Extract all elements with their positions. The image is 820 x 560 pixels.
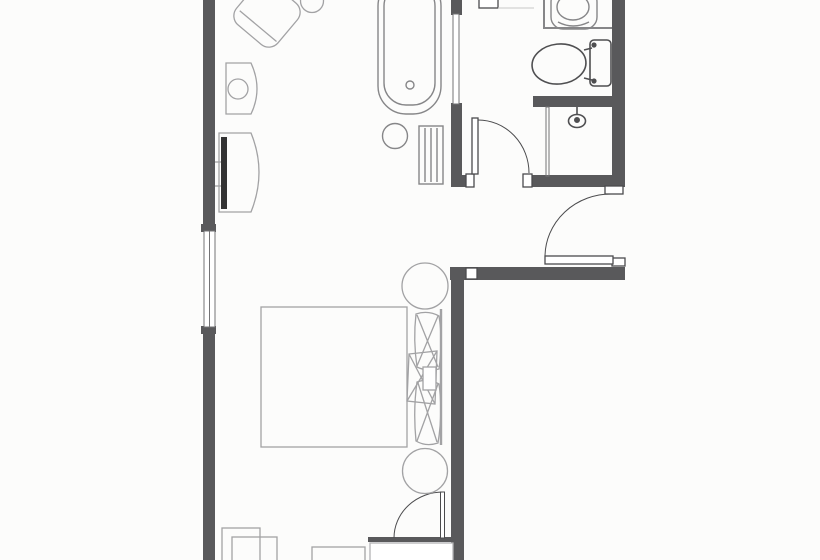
toilet-bolt-bottom <box>592 79 596 83</box>
wall-left-lower <box>203 331 215 560</box>
entry-door-leaf <box>545 256 613 264</box>
floor-plan-canvas <box>0 0 820 560</box>
closet-door-leaf <box>441 492 445 538</box>
wall-right-upper <box>612 0 625 187</box>
wall-bedroom-east <box>451 267 464 560</box>
toilet-bolt-top <box>592 43 596 47</box>
entry-door-jamb-top <box>605 186 623 194</box>
wall-left-upper <box>203 0 215 225</box>
tub-glass-partition <box>453 14 459 104</box>
hall-wall-jamb <box>466 268 477 279</box>
shower-nozzle <box>575 118 579 122</box>
wall-shower-north <box>533 96 625 107</box>
bathroom-door-leaf <box>472 118 478 174</box>
entry-door-jamb-bottom <box>612 258 625 266</box>
floor-plan <box>0 0 820 560</box>
plan-background <box>0 0 820 560</box>
cushion-fold <box>423 367 436 390</box>
tv-screen <box>221 137 227 209</box>
top-doorway-jamb <box>479 0 498 8</box>
closet-box <box>370 543 453 560</box>
bathroom-door-jamb-right <box>523 174 532 187</box>
wall-bathroom-south-right <box>531 175 612 187</box>
bathroom-door-jamb-left <box>466 174 474 187</box>
